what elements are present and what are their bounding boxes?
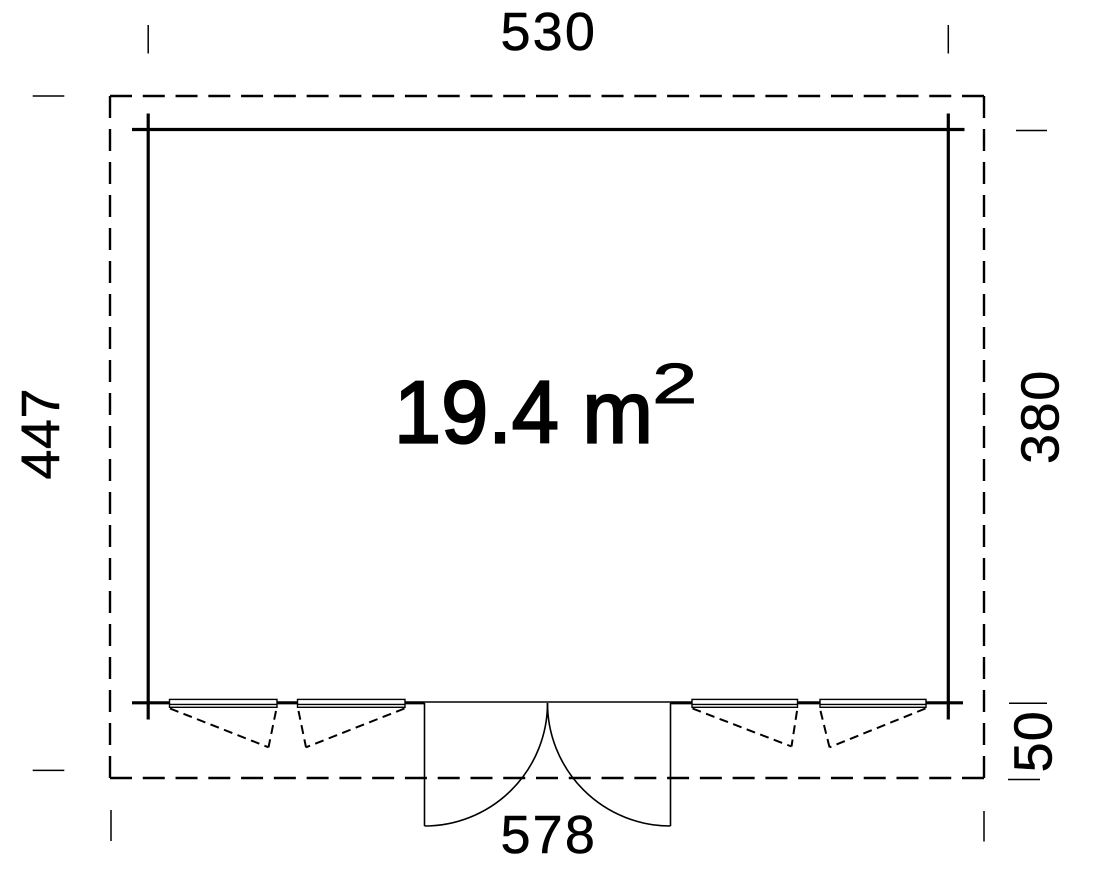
svg-text:2: 2: [652, 352, 697, 416]
svg-text:380: 380: [1010, 369, 1070, 464]
svg-text:447: 447: [11, 388, 71, 480]
svg-text:578: 578: [500, 805, 597, 865]
svg-text:50: 50: [1004, 710, 1064, 772]
svg-text:19.4 m: 19.4 m: [394, 363, 653, 462]
svg-text:530: 530: [500, 2, 597, 62]
